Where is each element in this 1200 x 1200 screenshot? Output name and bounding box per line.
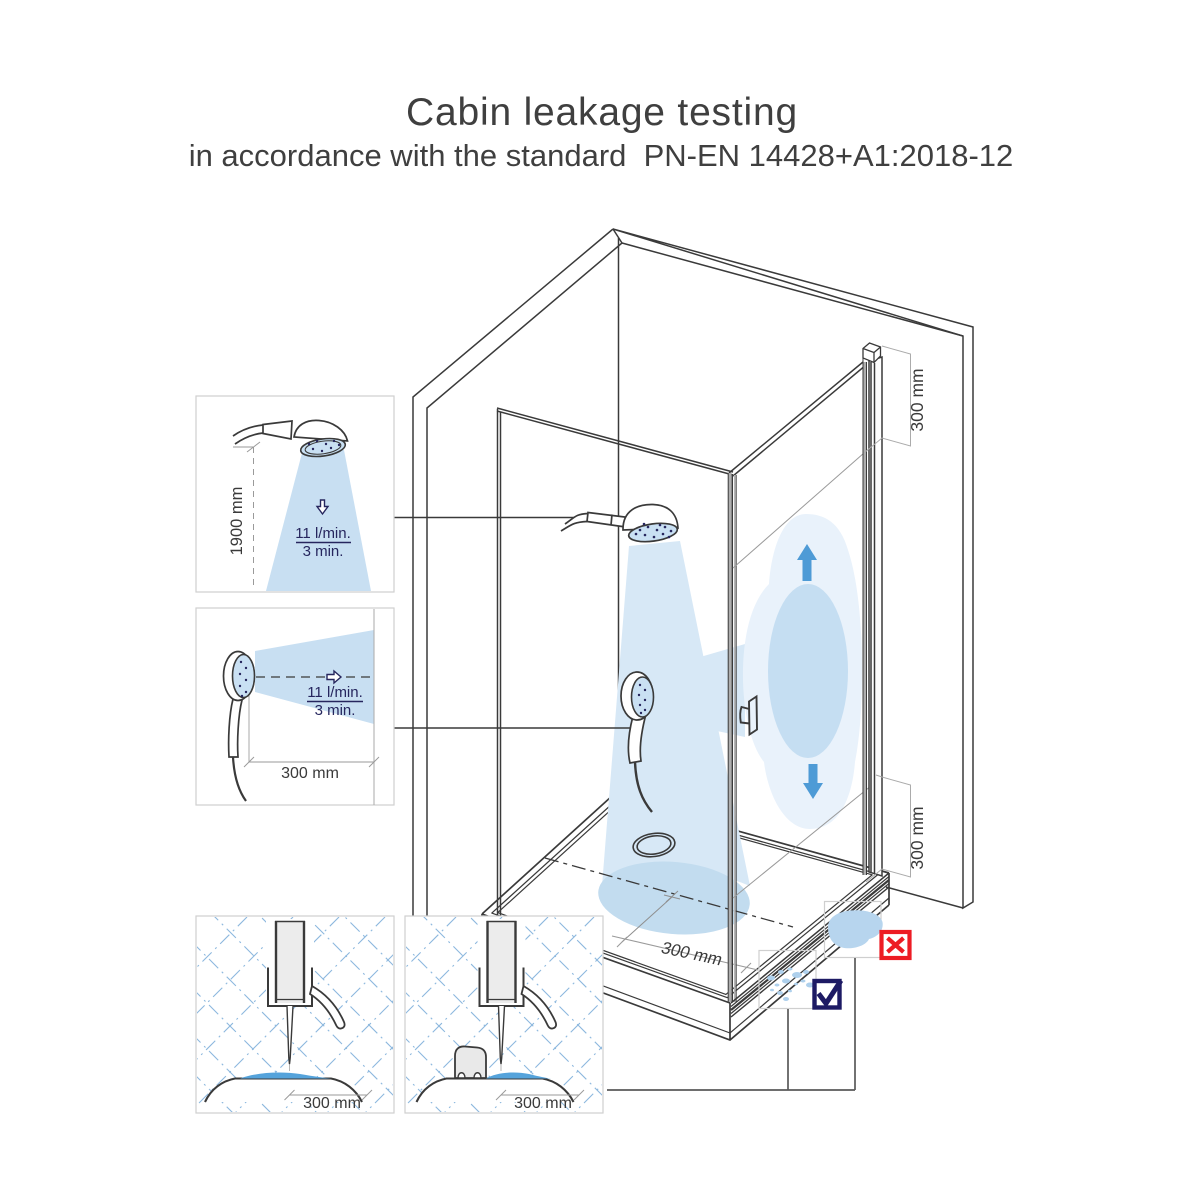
svg-text:300 mm: 300 mm [281,765,339,782]
svg-text:300 mm: 300 mm [907,368,927,431]
svg-text:300 mm: 300 mm [514,1095,572,1112]
svg-text:3 min.: 3 min. [303,543,344,560]
svg-text:300 mm: 300 mm [907,806,927,869]
svg-text:in accordance with the standar: in accordance with the standard PN-EN 14… [189,138,1014,173]
svg-text:Cabin leakage testing: Cabin leakage testing [406,91,798,134]
svg-text:11 l/min.: 11 l/min. [307,684,363,701]
svg-text:11 l/min.: 11 l/min. [295,525,351,542]
svg-text:3 min.: 3 min. [315,702,356,719]
svg-text:300 mm: 300 mm [303,1095,361,1112]
svg-text:1900 mm: 1900 mm [228,487,246,556]
